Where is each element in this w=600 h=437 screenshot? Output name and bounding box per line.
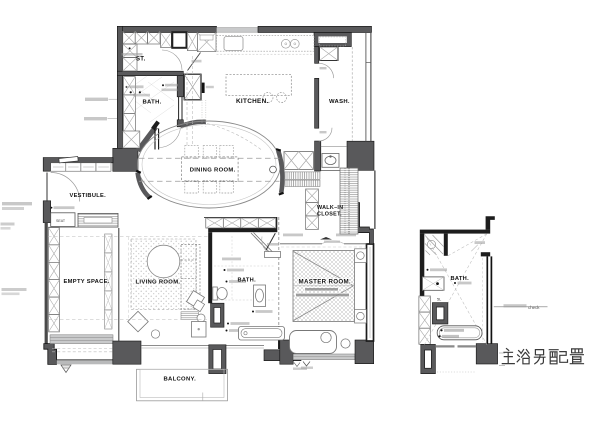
svg-text:CLOSET.: CLOSET. (317, 212, 342, 218)
svg-text:MASTER ROOM.: MASTER ROOM. (299, 279, 351, 286)
svg-text:BATH.: BATH. (143, 100, 162, 106)
svg-text:DINING ROOM.: DINING ROOM. (190, 167, 236, 173)
svg-text:BATH.: BATH. (238, 278, 257, 284)
svg-text:ST.: ST. (136, 57, 146, 63)
svg-text:VESTIBULE.: VESTIBULE. (70, 193, 107, 199)
svg-text:check: check (528, 305, 540, 310)
svg-text:EMPTY SPACE.: EMPTY SPACE. (64, 279, 110, 285)
svg-text:KITCHEN.: KITCHEN. (236, 98, 269, 105)
svg-text:BATH.: BATH. (451, 276, 470, 282)
svg-text:5L: 5L (437, 298, 441, 302)
svg-text:SEAT: SEAT (56, 219, 66, 223)
svg-text:LIVING ROOM.: LIVING ROOM. (136, 280, 181, 286)
svg-text:BALCONY.: BALCONY. (164, 377, 197, 383)
svg-text:WALK–IN: WALK–IN (317, 205, 343, 211)
svg-text:WASH.: WASH. (329, 99, 350, 105)
